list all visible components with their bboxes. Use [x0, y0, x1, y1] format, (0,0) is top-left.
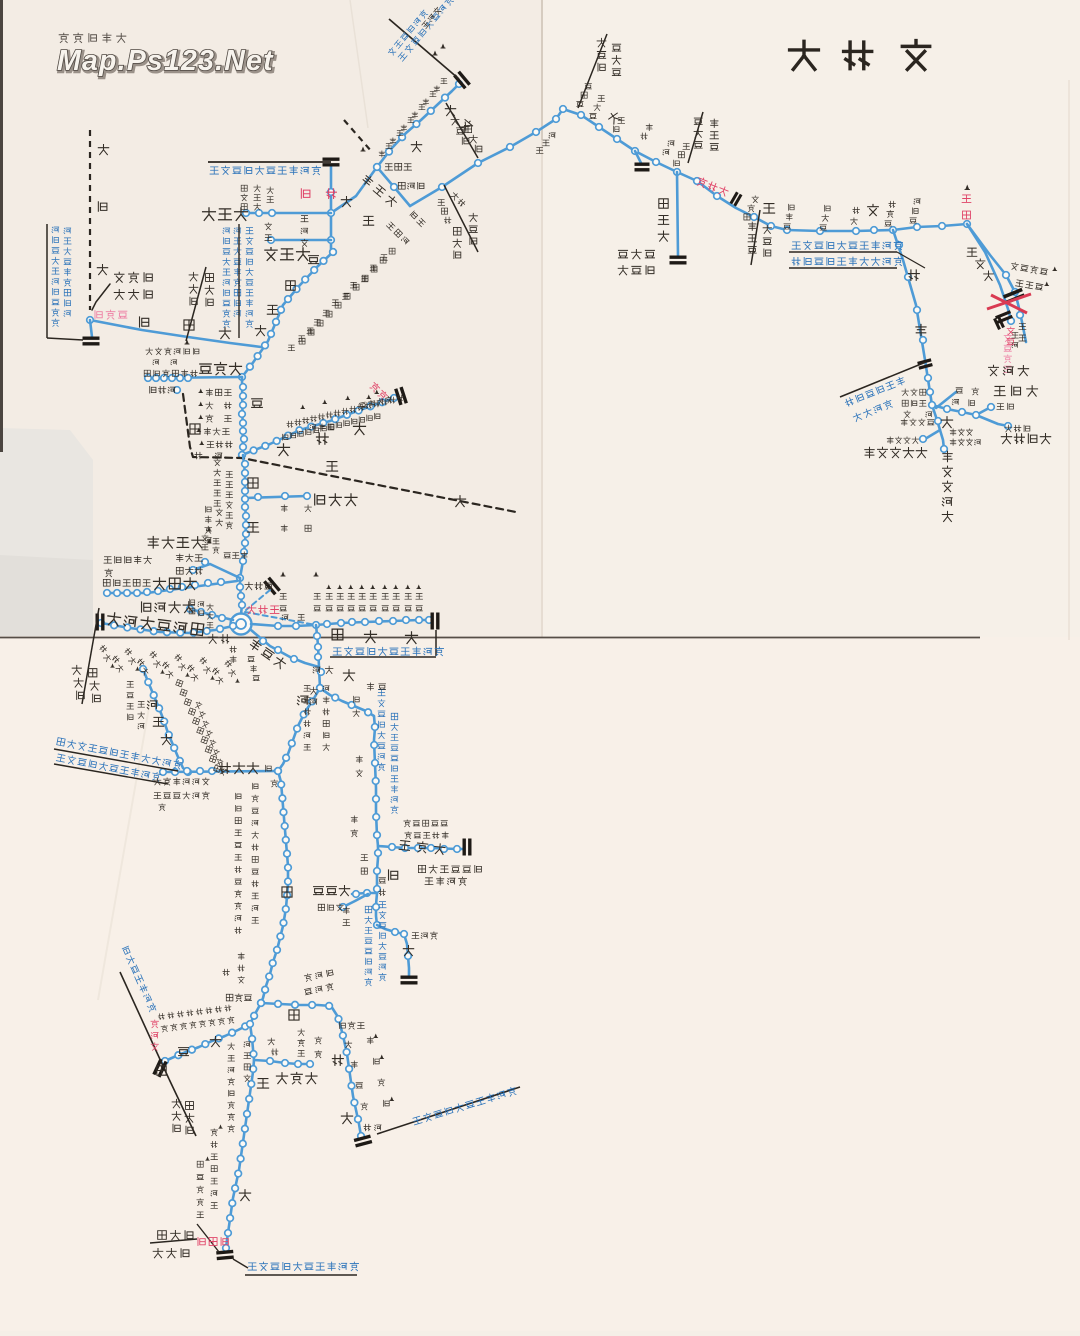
svg-text:Map.Ps123.Net: Map.Ps123.Net [57, 45, 274, 77]
